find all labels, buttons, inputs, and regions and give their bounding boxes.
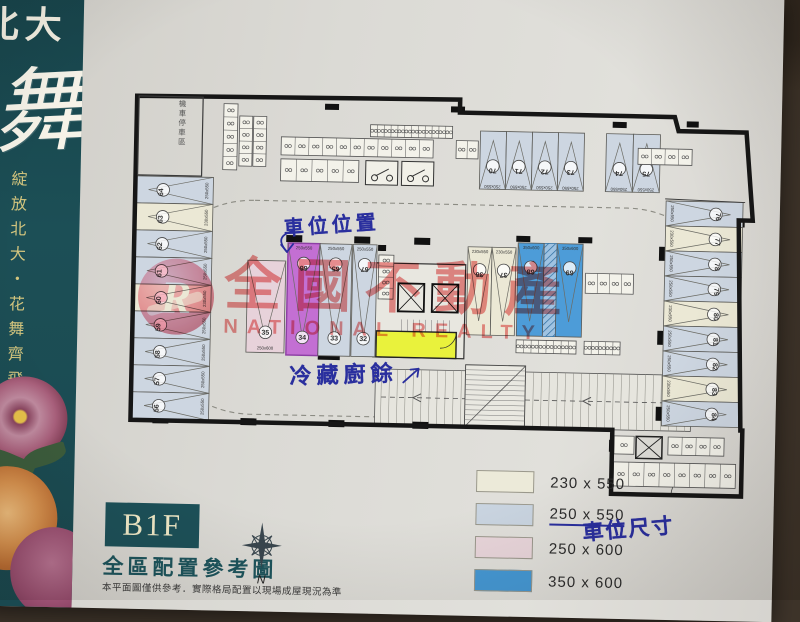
svg-text:76: 76 <box>714 213 721 221</box>
floorplan-drawing: 64250x55063230x55062250x55061250x5506023… <box>111 79 770 515</box>
handwritten-stall-size: 車位尺寸 <box>581 509 675 547</box>
brochure-page: 北大 舞 綻放北大・花舞齊飛 64250x55063230x55062250x5… <box>0 0 784 622</box>
svg-text:250x550: 250x550 <box>201 317 206 334</box>
svg-text:230x550: 230x550 <box>202 290 207 307</box>
svg-text:250x550: 250x550 <box>509 185 526 190</box>
svg-text:63: 63 <box>158 215 165 223</box>
svg-text:66: 66 <box>300 264 308 271</box>
svg-text:250x550: 250x550 <box>610 187 627 192</box>
svg-text:65: 65 <box>332 264 340 271</box>
svg-text:350x600: 350x600 <box>562 246 579 251</box>
svg-text:230x550: 230x550 <box>204 209 209 226</box>
svg-text:78: 78 <box>713 263 720 271</box>
legend-swatch <box>474 569 532 592</box>
svg-text:250x550: 250x550 <box>561 186 578 191</box>
motorcycle-room-label: 機車停車區 <box>176 100 188 148</box>
svg-text:68: 68 <box>527 268 535 275</box>
legend-swatch <box>475 503 533 526</box>
svg-text:250x550: 250x550 <box>328 246 345 251</box>
svg-text:62: 62 <box>157 242 164 250</box>
svg-text:71: 71 <box>515 167 523 174</box>
svg-text:64: 64 <box>158 188 165 196</box>
svg-text:250x550: 250x550 <box>483 184 500 189</box>
svg-text:250x550: 250x550 <box>669 255 674 272</box>
legend-size-label: 230 x 550 <box>550 474 625 493</box>
svg-text:70: 70 <box>489 166 497 173</box>
svg-text:250x550: 250x550 <box>668 280 673 297</box>
svg-text:72: 72 <box>541 167 549 174</box>
svg-text:80: 80 <box>712 313 719 321</box>
svg-text:230x550: 230x550 <box>472 249 489 254</box>
svg-text:250x550: 250x550 <box>204 182 209 199</box>
legend-swatch <box>475 536 533 559</box>
svg-text:35: 35 <box>261 330 269 337</box>
svg-text:34: 34 <box>298 335 306 342</box>
svg-text:250x600: 250x600 <box>257 345 274 350</box>
svg-text:73: 73 <box>567 168 575 175</box>
svg-text:250x550: 250x550 <box>667 330 672 347</box>
svg-text:57: 57 <box>154 377 161 385</box>
svg-text:250x550: 250x550 <box>637 187 654 192</box>
svg-text:37: 37 <box>499 271 507 278</box>
svg-text:58: 58 <box>155 350 162 358</box>
svg-text:350x600: 350x600 <box>523 245 540 250</box>
svg-text:33: 33 <box>330 335 338 342</box>
svg-text:230x550: 230x550 <box>668 305 673 322</box>
svg-text:230x550: 230x550 <box>666 380 671 397</box>
floor-label: B1F <box>122 507 182 544</box>
svg-text:250x550: 250x550 <box>203 236 208 253</box>
svg-text:230x550: 230x550 <box>669 230 674 247</box>
compass-rose: N <box>234 521 289 592</box>
svg-text:60: 60 <box>156 296 163 304</box>
legend-row: 230 x 550 <box>476 470 625 495</box>
brand-banner: 北大 舞 綻放北大・花舞齊飛 <box>0 0 85 608</box>
svg-text:67: 67 <box>361 265 369 272</box>
svg-text:75: 75 <box>642 170 650 177</box>
svg-text:250x550: 250x550 <box>666 405 671 422</box>
svg-text:69: 69 <box>566 268 574 275</box>
svg-text:250x550: 250x550 <box>667 355 672 372</box>
svg-text:250x550: 250x550 <box>200 398 205 415</box>
svg-text:77: 77 <box>713 238 720 246</box>
svg-text:56: 56 <box>154 404 161 412</box>
svg-text:74: 74 <box>615 169 623 176</box>
svg-text:84: 84 <box>710 413 717 421</box>
svg-text:250x550: 250x550 <box>201 344 206 361</box>
svg-text:250x550: 250x550 <box>535 185 552 190</box>
compass-north-label: N <box>257 572 266 586</box>
handwritten-cold-kitchen-waste: 冷藏廚餘 <box>289 355 398 390</box>
floor-label-box: B1F <box>105 502 200 548</box>
svg-text:250x550: 250x550 <box>202 263 207 280</box>
calligraphy-character: 舞 <box>0 35 85 173</box>
svg-text:61: 61 <box>156 269 163 277</box>
legend-size-label: 350 x 600 <box>548 573 623 592</box>
svg-text:36: 36 <box>476 270 484 277</box>
svg-text:81: 81 <box>711 338 718 346</box>
legend-swatch <box>476 470 534 493</box>
svg-text:79: 79 <box>712 288 719 296</box>
svg-text:250x550: 250x550 <box>200 371 205 388</box>
legend-row: 350 x 600 <box>474 569 623 594</box>
svg-text:250x550: 250x550 <box>670 205 675 222</box>
svg-text:250x550: 250x550 <box>357 246 374 251</box>
svg-text:59: 59 <box>155 323 162 331</box>
svg-text:230x550: 230x550 <box>496 249 513 254</box>
disclaimer-text: 本平面圖僅供參考．實際格局配置以現場成屋現況為準 <box>102 579 342 598</box>
svg-text:32: 32 <box>359 336 367 343</box>
svg-text:82: 82 <box>711 363 718 371</box>
svg-text:250x550: 250x550 <box>296 245 313 250</box>
photo-of-floorplan-page: { "sidebar": { "project": "北大", "calligr… <box>0 0 800 600</box>
svg-text:83: 83 <box>710 388 717 396</box>
